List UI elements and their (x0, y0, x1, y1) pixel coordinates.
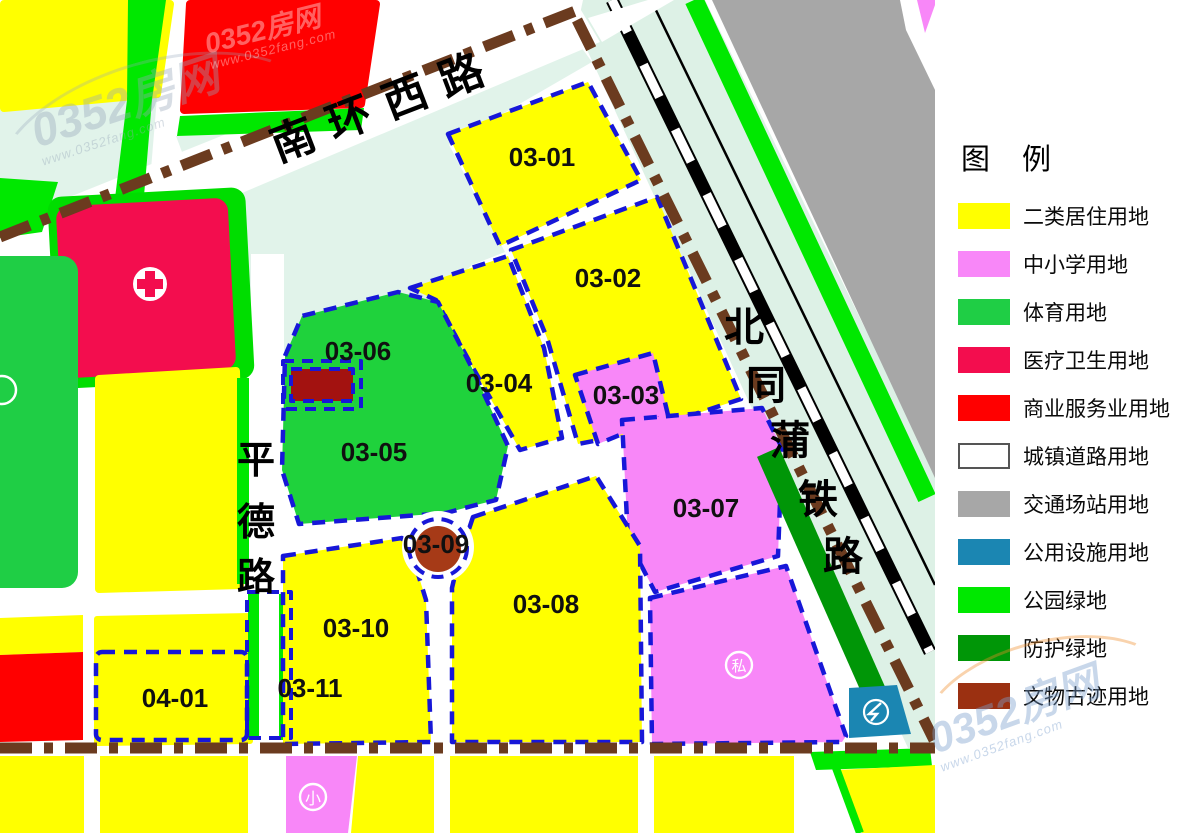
legend-item-protective-green: 防护绿地 (958, 634, 1170, 661)
legend-label: 公园绿地 (1023, 585, 1107, 615)
residential-parcel-0401-block (97, 616, 250, 743)
parcel-label-03-02: 03-02 (575, 263, 642, 293)
legend-label: 二类居住用地 (1023, 201, 1149, 231)
legend-item-sports: 体育用地 (958, 298, 1170, 325)
legend-item-medical: 医疗卫生用地 (958, 346, 1170, 373)
road-name-pingde-char: 平 (237, 440, 275, 482)
primary-school-mark: 小 (305, 790, 321, 808)
parcel-label-03-09: 03-09 (403, 529, 470, 559)
parcel-label-03-04: 03-04 (466, 368, 533, 398)
legend-swatch-utilities (958, 539, 1010, 565)
legend-item-transport-station: 交通场站用地 (958, 490, 1170, 517)
legend-label: 防护绿地 (1023, 633, 1107, 663)
sports-parcel-west (0, 256, 78, 588)
legend-item-urban-road: 城镇道路用地 (958, 442, 1170, 469)
residential-parcel (99, 371, 240, 589)
parcel-label-03-08: 03-08 (513, 589, 580, 619)
legend-title: 图 例 (961, 136, 1063, 178)
parcel-label-03-05: 03-05 (341, 437, 408, 467)
parcel-03-06-relic (291, 369, 353, 401)
parcel-label-03-07: 03-07 (673, 493, 740, 523)
residential-parcel (351, 756, 434, 833)
legend-item-school: 中小学用地 (958, 250, 1170, 277)
road-name-beitongpu-char: 铁 (798, 478, 838, 522)
school-parcel-south (286, 756, 357, 833)
legend-swatch-transport-station (958, 491, 1010, 517)
legend-swatch-school (958, 251, 1010, 277)
residential-parcel (0, 615, 83, 655)
legend-label: 文物古迹用地 (1023, 681, 1149, 711)
legend-panel: 图 例 二类居住用地 中小学用地 体育用地 医疗卫生用地 商业服务业用地 (935, 0, 1186, 833)
legend-item-residential: 二类居住用地 (958, 202, 1170, 229)
park-strip (248, 594, 259, 740)
road-name-pingde-char: 德 (237, 502, 275, 544)
private-school-mark: 私 (731, 658, 746, 675)
legend-swatch-protective-green (958, 635, 1010, 661)
parcel-label-03-11: 03-11 (277, 673, 342, 703)
legend-label: 体育用地 (1023, 297, 1107, 327)
legend-swatch-relics (958, 683, 1010, 709)
road-name-beitongpu-char: 蒲 (770, 419, 810, 463)
commercial-parcel (0, 652, 83, 742)
road-name-beitongpu-char: 北 (724, 306, 764, 350)
legend-label: 公用设施用地 (1023, 537, 1149, 567)
parcel-label-03-03: 03-03 (593, 380, 660, 410)
legend-item-utilities: 公用设施用地 (958, 538, 1170, 565)
parcel-label-03-06: 03-06 (325, 336, 392, 366)
legend-label: 中小学用地 (1023, 249, 1128, 279)
road-name-beitongpu-char: 同 (746, 364, 786, 408)
residential-parcel (0, 756, 84, 833)
planning-map-page: 小 私 03-01 03-02 03-03 03-04 03-05 03-06 … (0, 0, 1186, 833)
legend-swatch-commercial (958, 395, 1010, 421)
parcel-label-04-01: 04-01 (142, 683, 209, 713)
legend-item-park-green: 公园绿地 (958, 586, 1170, 613)
legend-label: 医疗卫生用地 (1023, 345, 1149, 375)
legend-label: 商业服务业用地 (1023, 393, 1170, 423)
legend-swatch-park-green (958, 587, 1010, 613)
parcel-label-03-01: 03-01 (509, 142, 576, 172)
road-name-pingde-char: 路 (237, 557, 276, 599)
legend-label: 城镇道路用地 (1023, 441, 1149, 471)
south-strip-parcels: 小 (0, 748, 935, 833)
road-name-beitongpu-char: 路 (823, 535, 864, 579)
legend-item-relics: 文物古迹用地 (958, 682, 1170, 709)
legend-label: 交通场站用地 (1023, 489, 1149, 519)
legend-swatch-sports (958, 299, 1010, 325)
legend-list: 二类居住用地 中小学用地 体育用地 医疗卫生用地 商业服务业用地 城镇道路用地 (958, 202, 1170, 730)
parcel-label-03-10: 03-10 (323, 613, 390, 643)
legend-swatch-medical (958, 347, 1010, 373)
legend-swatch-urban-road (958, 443, 1010, 469)
legend-swatch-residential (958, 203, 1010, 229)
residential-parcel (100, 756, 248, 833)
hospital-cross-icon (133, 267, 167, 301)
legend-item-commercial: 商业服务业用地 (958, 394, 1170, 421)
residential-parcel (654, 756, 794, 833)
residential-parcel (450, 756, 638, 833)
